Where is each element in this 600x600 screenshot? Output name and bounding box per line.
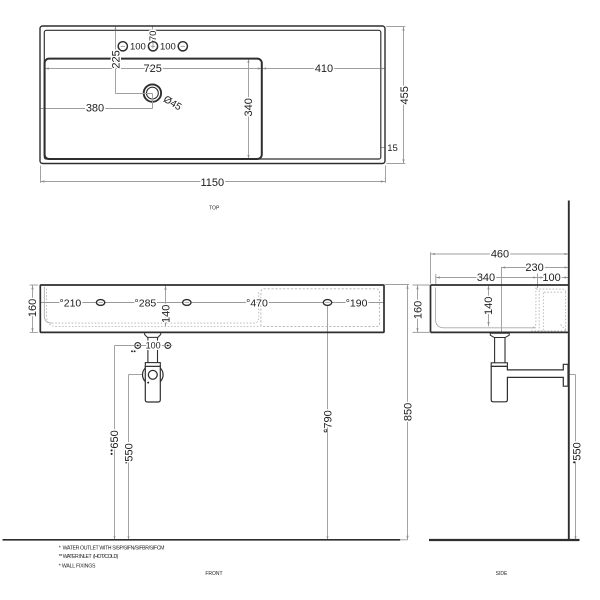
- svg-text:140: 140: [483, 297, 495, 315]
- svg-text:790: 790: [323, 410, 335, 428]
- svg-text:650: 650: [109, 430, 121, 448]
- svg-text:* WATER OUTLET WITH SISP/SIFN: * WATER OUTLET WITH SISP/SIFN/SIFBR/SIFC…: [59, 546, 165, 552]
- svg-text:** WATER INLET (HOT/COLD): ** WATER INLET (HOT/COLD): [59, 554, 119, 560]
- svg-text:100: 100: [542, 272, 560, 284]
- svg-text:230: 230: [525, 262, 543, 274]
- svg-text:160: 160: [412, 301, 424, 319]
- svg-text:70: 70: [148, 31, 159, 42]
- svg-text:TOP: TOP: [209, 205, 220, 211]
- svg-text:°190: °190: [346, 297, 368, 309]
- svg-text:* WALL FIXINGS: * WALL FIXINGS: [59, 563, 96, 569]
- svg-text:550: 550: [124, 443, 136, 461]
- svg-text:FRONT: FRONT: [205, 571, 222, 577]
- svg-text:1150: 1150: [200, 177, 224, 189]
- svg-text:°210: °210: [60, 297, 82, 309]
- svg-text:160: 160: [27, 299, 39, 317]
- svg-text:850: 850: [402, 403, 414, 421]
- svg-text:340: 340: [243, 98, 255, 116]
- svg-text:140: 140: [161, 305, 173, 323]
- svg-text:725: 725: [144, 63, 162, 75]
- svg-text:410: 410: [315, 63, 333, 75]
- svg-text:SIDE: SIDE: [496, 571, 508, 577]
- svg-text:100: 100: [160, 42, 176, 53]
- svg-text:550: 550: [571, 442, 583, 460]
- svg-text:340: 340: [477, 272, 495, 284]
- svg-text:225: 225: [110, 50, 122, 68]
- svg-text:100: 100: [146, 341, 161, 351]
- svg-text:°285: °285: [135, 297, 157, 309]
- svg-text:15: 15: [387, 143, 398, 154]
- svg-text:460: 460: [491, 249, 509, 261]
- svg-text:°470: °470: [246, 297, 268, 309]
- svg-text:100: 100: [130, 42, 146, 53]
- svg-text:380: 380: [86, 103, 104, 115]
- svg-text:455: 455: [399, 86, 411, 104]
